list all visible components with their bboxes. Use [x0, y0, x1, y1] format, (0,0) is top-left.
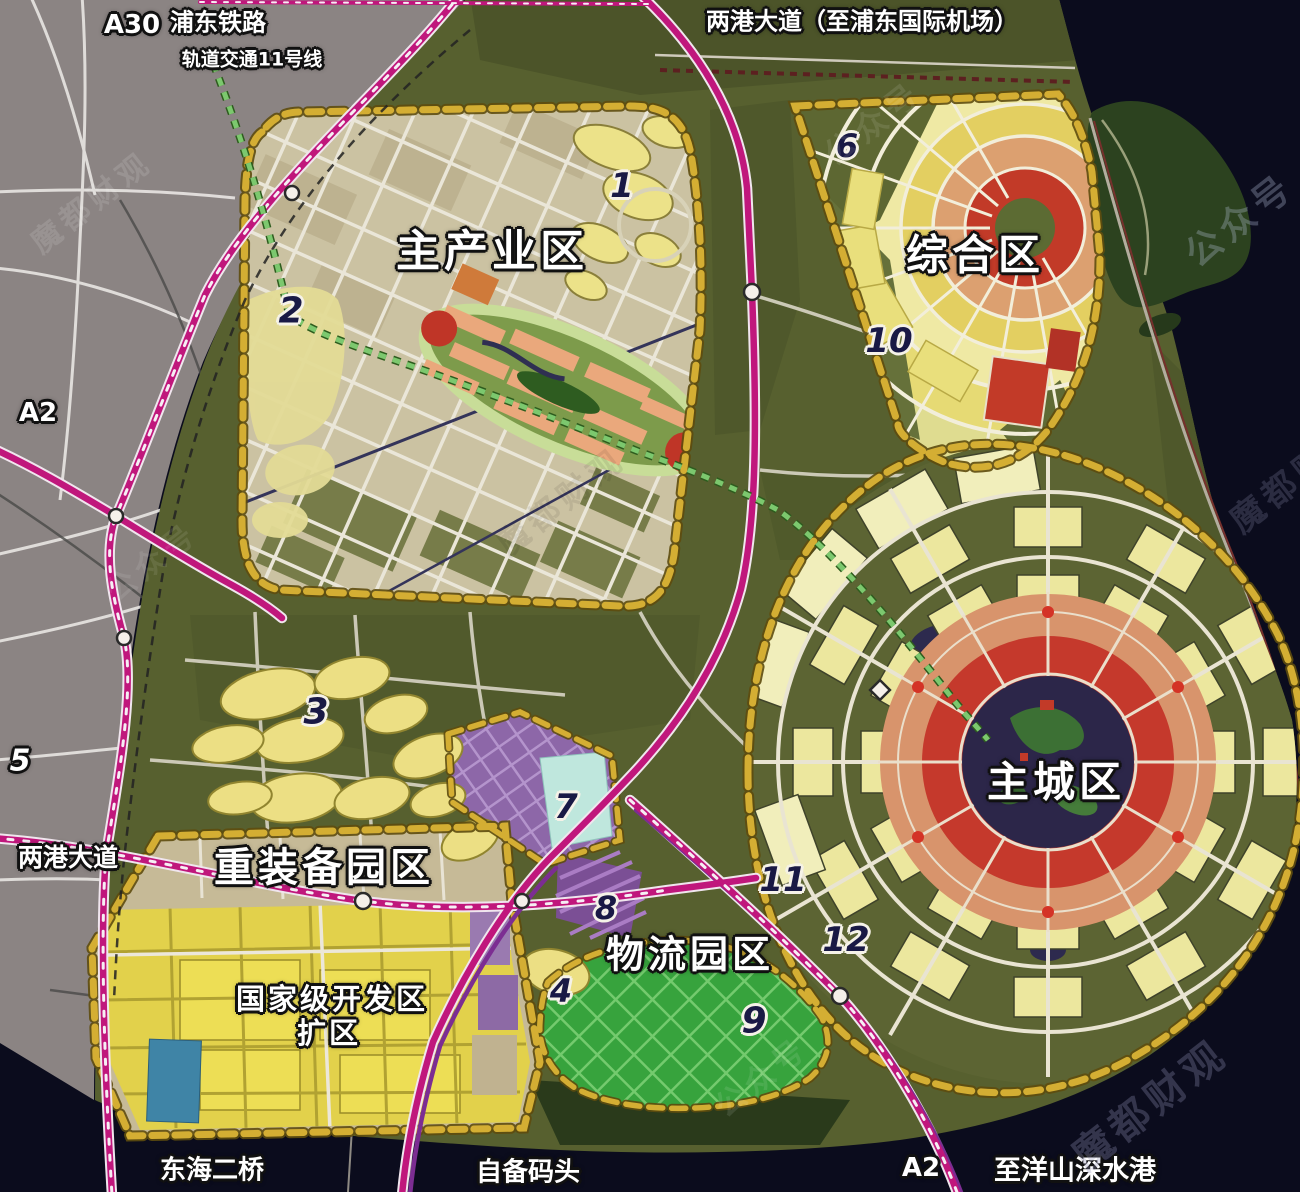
zone-label-logistics: 物流园区: [606, 924, 774, 979]
marker-11: 11: [759, 860, 806, 900]
road-label-metro-line-11: 轨道交通11号线: [182, 45, 322, 72]
zone-label-main-industry: 主产业区: [396, 215, 588, 279]
road-label-a2-west: A2: [19, 398, 57, 428]
planning-map: A30 浦东铁路 轨道交通11号线 两港大道（至浦东国际机场） A2 两港大道 …: [0, 0, 1300, 1192]
marker-10: 10: [865, 321, 912, 361]
marker-3: 3: [303, 692, 328, 733]
marker-5: 5: [10, 744, 31, 779]
marker-9: 9: [741, 1001, 766, 1042]
road-label-pudong-railway: 浦东铁路: [170, 3, 266, 38]
map-svg: [0, 0, 1300, 1192]
marker-4: 4: [550, 972, 572, 1010]
zone-label-comprehensive: 综合区: [906, 222, 1044, 283]
marker-8: 8: [595, 889, 617, 927]
road-label-lianggang-west: 两港大道: [18, 838, 118, 874]
road-label-donghai-bridge: 东海二桥: [160, 1150, 264, 1187]
zone-label-national-dev-line2: 扩区: [297, 1010, 361, 1052]
comp-red-block: [984, 356, 1050, 427]
road-label-to-yangshan: 至洋山深水港: [994, 1149, 1156, 1188]
zone-label-main-city: 主城区: [987, 749, 1125, 810]
heavy-purple-block2: [478, 975, 518, 1030]
road-label-lianggang-airport: 两港大道（至浦东国际机场）: [706, 2, 1018, 37]
blue-block: [147, 1039, 202, 1123]
marker-12: 12: [822, 920, 869, 960]
comp-red-block2: [1045, 328, 1080, 372]
marker-1: 1: [610, 166, 634, 206]
road-label-private-wharf: 自备码头: [476, 1152, 580, 1189]
heavy-tan-block: [472, 1035, 517, 1095]
road-label-a2-south: A2: [902, 1153, 940, 1183]
zone-label-heavy-equipment: 重装备园区: [214, 835, 434, 893]
marker-7: 7: [554, 787, 578, 827]
marker-6: 6: [836, 127, 858, 165]
road-label-a30: A30: [104, 10, 160, 40]
marker-2: 2: [278, 291, 303, 332]
